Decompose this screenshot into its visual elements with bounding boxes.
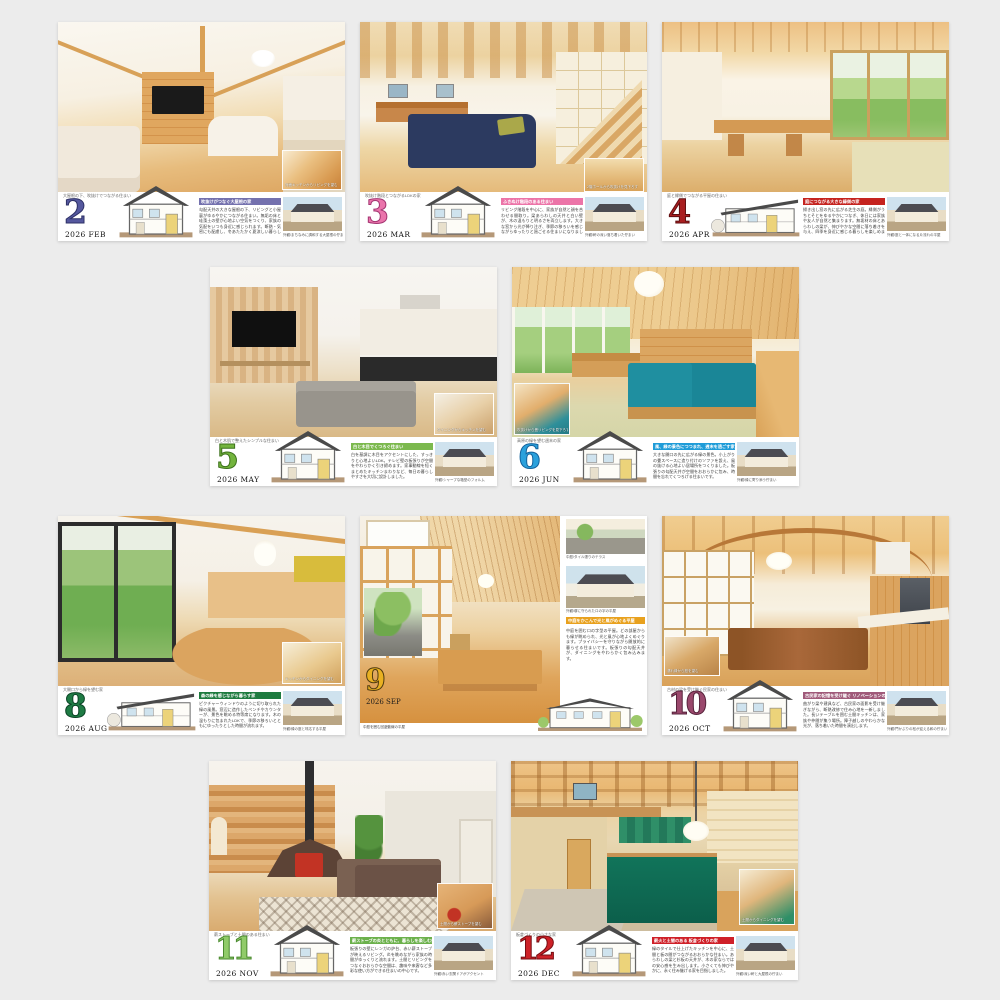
inset-caption: ダイニングからキッチンを望む (437, 428, 486, 433)
thumbnail-caption: 外観/塀に守られたロの字の平屋 (566, 609, 645, 614)
thumbnail-caption: 外観/庭と一体になる片流れの平屋 (887, 233, 947, 238)
main-photo: 土間からダイニングを望む (511, 761, 798, 931)
photo-tv-console (220, 361, 310, 366)
photo-pendant-lamp (478, 574, 494, 588)
thumb-wall (577, 584, 634, 597)
body-text: 白を基調に木目をアクセントにした、すっきりと心地よいLDK。テレビ壁の板張りが空… (351, 452, 433, 480)
inset-caption: 土間からダイニングを望む (742, 918, 784, 923)
photo-green-tile (619, 817, 691, 843)
photo-range-hood (400, 295, 440, 309)
house-section-diagram (414, 181, 502, 239)
body-text: ピクチャーウィンドウのように切り取られた緑の風景。窓辺に造作したベンチやカウンタ… (199, 701, 281, 729)
house-section-diagram (536, 693, 644, 733)
photo-sofa (296, 381, 416, 427)
info-strip: 薪ストーブと土間のある住まい 11 2026 NOV 薪ストーブの炎とともに、暮… (209, 931, 496, 980)
exterior-thumbnail (736, 936, 795, 970)
info-strip: 白と木肌で整えたシンプルな住まい 5 2026 MAY 白と木目でくつろぐ住まい… (210, 437, 497, 486)
headline-bar: 吹抜けがつなぐ大屋根の家 (199, 198, 281, 205)
thumb-roof (892, 204, 942, 212)
main-photo (662, 22, 949, 192)
month-number: 10 (668, 689, 703, 720)
month-label: 2026 DEC (518, 969, 560, 978)
photo-yellow-cabinet (294, 556, 345, 582)
photo-island-counter (208, 116, 278, 156)
thumb-roof (892, 698, 942, 706)
exterior-thumbnail (435, 442, 494, 476)
inset-caption: キッチンからダイニングを望む (285, 677, 334, 682)
inset-photo: 土間からダイニングを望む (739, 869, 795, 925)
thumb-wall (745, 457, 787, 467)
courtyard-thumbnail (566, 519, 645, 554)
exterior-thumbnail (283, 691, 342, 725)
thumb-wall (291, 212, 333, 222)
photo-dining-table (714, 120, 832, 133)
inset-caption: 吹抜けから畳リビングを見下ろす (517, 428, 568, 433)
headline-bar: 中庭をかこんで光と風がめぐる平屋 (566, 617, 645, 624)
house-section-diagram (565, 920, 653, 978)
main-photo: 対面キッチンからリビングを望む (58, 22, 345, 192)
description-block: 吹抜けがつなぐ大屋根の家 勾配天井の大きな屋根の下、リビングと小屋裏がゆるやかに… (199, 198, 281, 235)
photo-teal-sofa (628, 363, 756, 409)
thumbnail-caption: 外観/緑に寄り添う佇まい (737, 478, 797, 483)
month-number: 2 (64, 195, 87, 228)
headline-bar: 薪火と土間のある 板倉づくりの家 (652, 937, 734, 944)
photo-tv (152, 86, 204, 114)
calendar-card-june: 吹抜けから畳リビングを見下ろす 高原の緑を望む週末の家 6 2026 JUN 風… (512, 267, 799, 486)
photo-range-hood (876, 542, 910, 574)
photo-pendant-lamp (254, 540, 276, 566)
photo-arch-niche (211, 817, 227, 855)
photo-sofa-base (628, 407, 756, 419)
calendar-card-september: 9 2026 SEP 中庭を囲む回遊動線の平屋 中庭/タイル張りのテラス 外観/… (360, 516, 647, 735)
exterior-thumbnail (434, 936, 493, 970)
photo-pendant-lamp (634, 271, 664, 297)
thumbnail-caption: 外観/赤い玄関ドアがアクセント (434, 972, 494, 977)
calendar-card-march: 2階ホールから吹抜けを見下ろす 吹抜け階段とつながるLDKの家 3 2026 M… (360, 22, 647, 241)
inset-caption: 濡れ縁から庭を望む (667, 669, 699, 674)
headline-bar: 白と木目でくつろぐ住まい (351, 443, 433, 450)
month-number: 8 (64, 689, 87, 722)
thumb-wall (895, 706, 937, 716)
photo-chair (786, 134, 802, 156)
inset-photo: 土間から薪ストーブを望む (437, 883, 493, 929)
thumb-plant (574, 523, 596, 543)
thumb-wall (593, 212, 635, 222)
description-block: 森の緑を感じながら暮らす家 ピクチャーウィンドウのように切り取られた緑の風景。窓… (199, 692, 281, 729)
photo-window-mullion (867, 50, 870, 140)
headline-bar: 薪ストーブの炎とともに、暮らしを楽しむ住まい (350, 937, 432, 944)
info-strip: 板倉づくりの小さな家 12 2026 DEC 薪火と土間のある 板倉づくりの家 … (511, 931, 798, 980)
body-text: 大きな開口の先に広がる緑の景色。小上がりの畳スペースに造り付けのソファを設え、風… (653, 452, 735, 480)
thumb-roof (572, 574, 638, 584)
thumb-roof (741, 943, 791, 951)
house-section-diagram (263, 920, 351, 978)
month-label: 2026 OCT (669, 724, 711, 733)
month-label: 2026 SEP (366, 698, 401, 706)
body-text: 中庭を囲むロの字型の平屋。どの部屋からも緑が眺められ、光と風が心地よくめぐります… (566, 628, 645, 662)
exterior-thumbnail (566, 566, 645, 608)
exterior-thumbnail (737, 442, 796, 476)
photo-kitchen (360, 309, 497, 357)
calendar-card-may: ダイニングからキッチンを望む 白と木肌で整えたシンプルな住まい 5 2026 M… (210, 267, 497, 486)
exterior-thumbnail (585, 197, 644, 231)
photo-window-mullion (114, 522, 118, 662)
headline-bar: ふきぬけ階段のある住まい (501, 198, 583, 205)
exterior-thumbnail (887, 691, 946, 725)
thumb-wall (443, 457, 485, 467)
month-number: 9 (365, 666, 386, 696)
house-section-diagram (566, 426, 654, 484)
description-block: 風、緑の景色につつまれ、週末を過ごす家 大きな開口の先に広がる緑の景色。小上がり… (653, 443, 735, 480)
month-number: 6 (518, 440, 541, 473)
photo-loft-beam (511, 807, 661, 817)
body-text: 緑のタイルで仕上げたキッチンを中心に、土間と板の間がつながるおおらかな住まい。あ… (652, 946, 734, 974)
inset-caption: 2階ホールから吹抜けを見下ろす (587, 185, 638, 190)
body-text: 曲がり梁や建具など、古民家の面影を受け継ぎながら、断熱改修で住み心地を一新しまし… (803, 701, 885, 729)
photo-chair (728, 134, 744, 156)
calendar-card-february: 対面キッチンからリビングを望む 大屋根の下、吹抜けでつながる住まい 2 2026… (58, 22, 345, 241)
photo-garden-window (830, 50, 949, 140)
info-strip: 庭と縁側でつながる平屋の住まい 4 2026 APR 庭につながる大きな縁側の家… (662, 192, 949, 241)
thumb-roof (742, 449, 792, 457)
headline-bar: 風、緑の景色につつまれ、週末を過ごす家 (653, 443, 735, 450)
inset-photo: ダイニングからキッチンを望む (434, 393, 494, 435)
month-label: 2026 APR (669, 230, 710, 239)
house-section-diagram (264, 426, 352, 484)
calendar-card-december: 土間からダイニングを望む 板倉づくりの小さな家 12 2026 DEC 薪火と土… (511, 761, 798, 980)
info-strip: 吹抜け階段とつながるLDKの家 3 2026 MAR ふきぬけ階段のある住まい … (360, 192, 647, 241)
main-photo: 濡れ縁から庭を望む (662, 516, 949, 686)
thumb-roof (590, 204, 640, 212)
photo-wood-ramp (756, 351, 799, 437)
thumb-wall (291, 706, 333, 716)
house-section-diagram (706, 193, 806, 239)
photo-ceiling (662, 22, 949, 52)
info-strip: 大屋根の下、吹抜けでつながる住まい 2 2026 FEB 吹抜けがつなぐ大屋根の… (58, 192, 345, 241)
description-block: 薪ストーブの炎とともに、暮らしを楽しむ住まい 板張りの壁にレンガの炉台、赤い薪ス… (350, 937, 432, 974)
description-block: 白と木目でくつろぐ住まい 白を基調に木目をアクセントにした、すっきりと心地よいL… (351, 443, 433, 480)
photo-long-table (728, 628, 868, 670)
headline-bar: 古民家の記憶を受け継ぐ リノベーションの家 (803, 692, 885, 699)
month-label: 2026 MAR (367, 230, 410, 239)
calendar-card-april: 庭と縁側でつながる平屋の住まい 4 2026 APR 庭につながる大きな縁側の家… (662, 22, 949, 241)
month-number: 3 (366, 195, 389, 228)
thumb-roof (439, 943, 489, 951)
photo-pendant-lamp (766, 552, 792, 570)
photo-caption: 中庭を囲む回遊動線の平屋 (363, 725, 405, 730)
photo-shelving (707, 791, 798, 863)
thumb-roof (440, 449, 490, 457)
house-section-diagram (102, 687, 202, 733)
thumbnail-caption: 中庭/タイル張りのテラス (566, 555, 645, 560)
thumbnail-caption: 外観/緑の庭と呼応する平屋 (283, 727, 343, 732)
description-block: 庭につながる大きな縁側の家 掃き出し窓の先に広がる芝生の庭。縁側がうちとそとをゆ… (803, 198, 885, 235)
calendar-card-august: キッチンからダイニングを望む 大開口から緑を望む家 8 2026 AUG 森の緑… (58, 516, 345, 735)
info-strip: 大開口から緑を望む家 8 2026 AUG 森の緑を感じながら暮らす家 ピクチャ… (58, 686, 345, 735)
photo-wood-stove (295, 853, 323, 877)
photo-door (567, 839, 591, 891)
calendar-card-november: 土間から薪ストーブを望む 薪ストーブと土間のある住まい 11 2026 NOV … (209, 761, 496, 980)
photo-tv (232, 311, 296, 347)
photo-window (573, 783, 597, 800)
description-block: 古民家の記憶を受け継ぐ リノベーションの家 曲がり梁や建具など、古民家の面影を受… (803, 692, 885, 729)
month-number: 4 (668, 195, 691, 228)
body-text: 勾配天井の大きな屋根の下、リビングと小屋裏がゆるやかにつながる住まい。無垢の床と… (199, 207, 281, 235)
thumb-roof (288, 698, 338, 706)
photo-lamp-cord (695, 761, 697, 823)
thumb-roof (288, 204, 338, 212)
main-photo: ダイニングからキッチンを望む (210, 267, 497, 437)
main-photo (360, 516, 560, 723)
house-section-diagram (112, 181, 200, 239)
photo-tatami (852, 142, 949, 192)
photo-pendant-lamp (251, 50, 275, 67)
thumbnail-caption: 外観/門かぶりの松が迎える和の佇まい (887, 727, 947, 732)
month-number: 12 (517, 934, 552, 965)
photo-window (388, 84, 408, 98)
thumb-wall (442, 951, 484, 961)
body-text: 掃き出し窓の先に広がる芝生の庭。縁側がうちとそとをゆるやかにつなぎ、休日には家族… (803, 207, 885, 235)
info-strip: 古材の梁を受け継ぐ民家の住まい 10 2026 OCT 古民家の記憶を受け継ぐ … (662, 686, 949, 735)
headline-bar: 森の緑を感じながら暮らす家 (199, 692, 281, 699)
month-label: 2026 FEB (65, 230, 106, 239)
inset-caption: 対面キッチンからリビングを望む (285, 183, 338, 188)
thumb-wall (744, 951, 786, 961)
calendar-card-october: 濡れ縁から庭を望む 古材の梁を受け継ぐ民家の住まい 10 2026 OCT 古民… (662, 516, 949, 735)
inset-photo: 対面キッチンからリビングを望む (282, 150, 342, 190)
exterior-thumbnail (887, 197, 946, 231)
main-photo: 2階ホールから吹抜けを見下ろす (360, 22, 647, 192)
photo-window-mullion (907, 50, 910, 140)
inset-photo: 2階ホールから吹抜けを見下ろす (584, 158, 644, 192)
thumbnail-caption: 外観/シャープな箱型のフォルム (435, 478, 495, 483)
headline-bar: 庭につながる大きな縁側の家 (803, 198, 885, 205)
photo-wall (662, 52, 722, 140)
inset-photo: 濡れ縁から庭を望む (664, 636, 720, 676)
info-strip: 高原の緑を望む週末の家 6 2026 JUN 風、緑の景色につつまれ、週末を過ご… (512, 437, 799, 486)
photo-window (436, 84, 454, 98)
description-block: 薪火と土間のある 板倉づくりの家 緑のタイルで仕上げたキッチンを中心に、土間と板… (652, 937, 734, 974)
inset-photo: 吹抜けから畳リビングを見下ろす (514, 383, 570, 435)
description-block: ふきぬけ階段のある住まい リビング階段を中心に、家族が自然と顔を合わせる間取り。… (501, 198, 583, 235)
photo-plant (374, 592, 412, 636)
house-section-diagram (716, 675, 804, 733)
exterior-thumbnail (283, 197, 342, 231)
month-number: 11 (215, 934, 250, 965)
thumb-wall (895, 212, 937, 222)
inset-caption: 土間から薪ストーブを望む (440, 922, 482, 927)
inset-photo: キッチンからダイニングを望む (282, 642, 342, 684)
main-photo: 吹抜けから畳リビングを見下ろす (512, 267, 799, 437)
photo-green-island (607, 857, 717, 923)
month-label: 2026 NOV (216, 969, 259, 978)
photo-counter (360, 355, 497, 381)
month-label: 2026 MAY (217, 475, 259, 484)
thumbnail-caption: 外観/軒の深い落ち着いた佇まい (585, 233, 645, 238)
main-photo: 土間から薪ストーブを望む (209, 761, 496, 931)
body-text: 板張りの壁にレンガの炉台、赤い薪ストーブが映えるリビング。炎を眺めながら家族の時… (350, 946, 432, 974)
photo-pendant-lamp (683, 821, 709, 841)
thumbnail-caption: 外観/深い軒と大屋根の佇まい (736, 972, 796, 977)
month-number: 5 (216, 440, 239, 473)
photo-stove-chimney (305, 761, 314, 853)
main-photo: キッチンからダイニングを望む (58, 516, 345, 686)
photo-dining-table (438, 650, 542, 684)
month-label: 2026 JUN (519, 475, 560, 484)
body-text: リビング階段を中心に、家族が自然と顔を合わせる間取り。梁あらわしの天井と白い壁が… (501, 207, 583, 235)
thumbnail-caption: 外観/まちなみに調和する大屋根の佇まい (283, 233, 343, 238)
